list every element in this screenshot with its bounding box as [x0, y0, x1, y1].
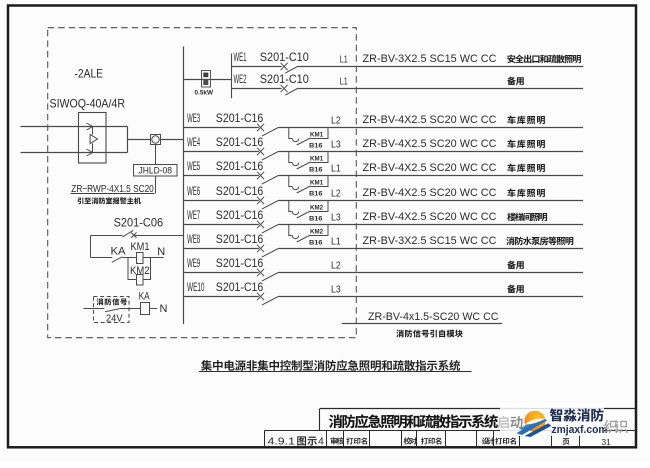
svg-text:31: 31	[602, 437, 612, 447]
svg-text:JHLD-08: JHLD-08	[139, 166, 173, 177]
svg-text:SIWOQ-40A/4R: SIWOQ-40A/4R	[50, 97, 126, 111]
svg-text:KM1: KM1	[310, 180, 323, 187]
svg-text:ZR-BV-3X2.5 SC15 WC CC: ZR-BV-3X2.5 SC15 WC CC	[363, 53, 497, 65]
svg-text:WE5: WE5	[187, 161, 200, 173]
svg-text:L1: L1	[331, 162, 341, 174]
svg-text:KA: KA	[139, 291, 150, 303]
svg-text:S201-C16: S201-C16	[216, 258, 263, 270]
svg-text:ZR-BV-4X2.5 SC20 WC CC: ZR-BV-4X2.5 SC20 WC CC	[363, 162, 497, 174]
svg-text:ZR-BV-4X2.5 SC20 WC CC: ZR-BV-4X2.5 SC20 WC CC	[363, 114, 497, 126]
svg-text:ZR-BV-4X2.5 SC20 WC CC: ZR-BV-4X2.5 SC20 WC CC	[363, 211, 497, 223]
svg-text:S201-C16: S201-C16	[216, 161, 263, 173]
svg-text:L1: L1	[331, 235, 341, 247]
svg-text:S201-C16: S201-C16	[216, 186, 263, 198]
svg-text:ZR-BV-4X2.5 SC20 WC CC: ZR-BV-4X2.5 SC20 WC CC	[363, 187, 497, 199]
svg-text:KM1: KM1	[310, 132, 323, 139]
svg-text:4.9.1: 4.9.1	[268, 436, 296, 448]
svg-text:N: N	[157, 246, 165, 258]
svg-text:S201-C16: S201-C16	[216, 137, 263, 149]
svg-text:-2ALE: -2ALE	[75, 67, 104, 81]
svg-text:S201-C10: S201-C10	[260, 74, 309, 86]
svg-text:L1: L1	[340, 53, 348, 65]
svg-text:ZR-BV-4X2.5 SC20 WC CC: ZR-BV-4X2.5 SC20 WC CC	[363, 138, 497, 150]
svg-text:WE2: WE2	[234, 74, 247, 86]
svg-text:WE6: WE6	[187, 186, 200, 198]
svg-text:KA: KA	[111, 245, 127, 257]
svg-text:L3: L3	[331, 138, 341, 150]
svg-text:KM1: KM1	[310, 156, 323, 163]
svg-text:S201-C16: S201-C16	[216, 234, 263, 246]
svg-text:L3: L3	[331, 211, 341, 223]
svg-text:B16: B16	[309, 240, 323, 247]
svg-text:WE10: WE10	[187, 282, 205, 294]
svg-text:L1: L1	[340, 75, 348, 87]
svg-text:24V: 24V	[106, 313, 123, 324]
svg-text:S201-C10: S201-C10	[260, 52, 309, 64]
svg-text:B16: B16	[309, 167, 323, 174]
svg-text:WE3: WE3	[187, 113, 200, 125]
svg-text:zmjaxf.com: zmjaxf.com	[552, 424, 608, 436]
svg-text:L2: L2	[331, 114, 341, 126]
svg-text:ZR-BV-3X2.5 SC15 WC CC: ZR-BV-3X2.5 SC15 WC CC	[363, 235, 497, 247]
svg-text:KM2: KM2	[310, 229, 323, 236]
svg-text:WE9: WE9	[187, 258, 200, 270]
svg-text:0.5kW: 0.5kW	[195, 90, 214, 96]
svg-text:WE8: WE8	[187, 234, 200, 246]
svg-text:N: N	[160, 303, 168, 315]
svg-text:S201-C16: S201-C16	[216, 282, 263, 294]
svg-text:ZR-BV-4x1.5-SC20 WC CC: ZR-BV-4x1.5-SC20 WC CC	[368, 311, 499, 323]
svg-text:KM2: KM2	[310, 205, 323, 212]
svg-text:WE4: WE4	[187, 137, 201, 149]
svg-text:KM1: KM1	[131, 241, 150, 253]
svg-text:L2: L2	[331, 259, 341, 271]
svg-text:B16: B16	[309, 143, 323, 150]
svg-text:WE1: WE1	[234, 52, 247, 64]
svg-text:L2: L2	[331, 187, 341, 199]
svg-text:B16: B16	[309, 216, 323, 223]
svg-text:WE7: WE7	[187, 210, 200, 222]
svg-text:L3: L3	[331, 283, 341, 295]
svg-text:S201-C16: S201-C16	[216, 113, 263, 125]
svg-text:4: 4	[318, 436, 324, 448]
svg-text:S201-C06: S201-C06	[114, 218, 164, 230]
svg-text:S201-C16: S201-C16	[216, 210, 263, 222]
svg-text:B16: B16	[309, 191, 323, 198]
